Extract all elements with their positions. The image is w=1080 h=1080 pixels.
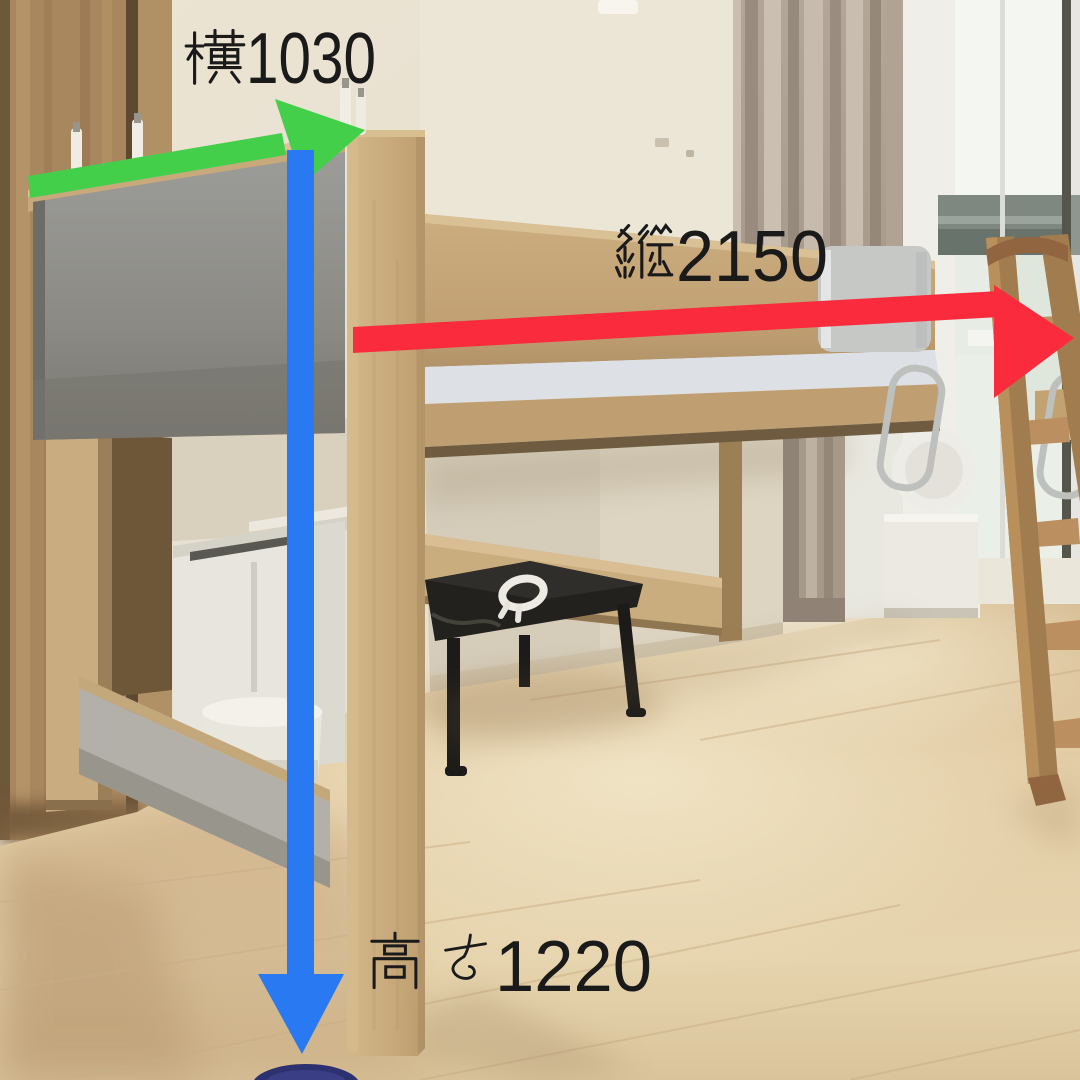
svg-text:1220: 1220	[495, 927, 652, 1007]
svg-text:1030: 1030	[246, 19, 376, 99]
svg-text:2150: 2150	[676, 217, 828, 297]
